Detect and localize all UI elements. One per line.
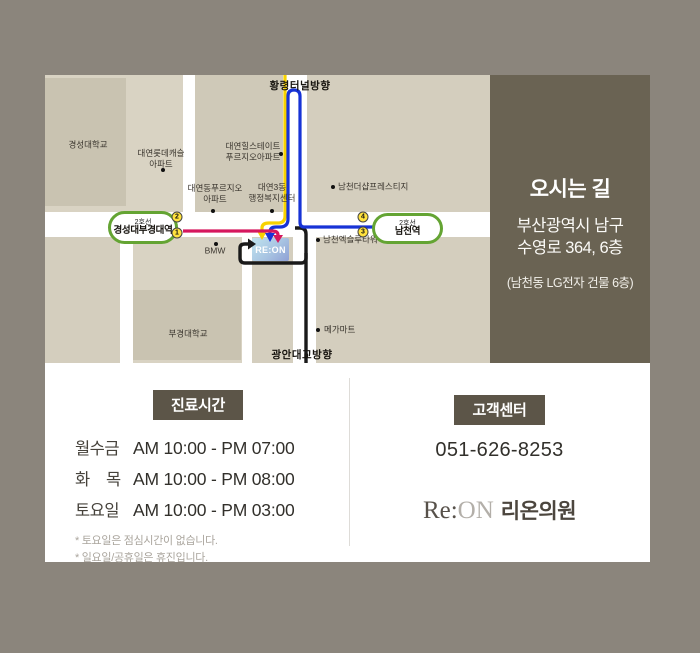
station-name-label: 경성대부경대역 xyxy=(113,226,172,236)
hours-row: 화 목AM 10:00 - PM 08:00 xyxy=(75,466,335,490)
map-label: 황령터널방향 xyxy=(270,80,331,94)
station-exit-number: 3 xyxy=(358,227,369,238)
contact-badge: 고객센터 xyxy=(454,395,544,425)
clinic-address: 부산광역시 남구 수영로 364, 6층 xyxy=(490,216,650,260)
page-background: RE:ON 황령터널방향광안대교방향경성대학교대연롯데캐슬 아파트대연힐스테이트… xyxy=(0,0,700,653)
subway-station-badge: 2호선경성대부경대역 xyxy=(108,211,178,244)
hours-notes: * 토요일은 점심시간이 없습니다.* 일요일/공휴일은 휴진입니다. xyxy=(75,533,335,566)
location-map: RE:ON 황령터널방향광안대교방향경성대학교대연롯데캐슬 아파트대연힐스테이트… xyxy=(45,75,490,363)
map-label: 대연힐스테이트 푸르지오아파트 xyxy=(226,141,281,163)
address-line2: 수영로 364, 6층 xyxy=(490,238,650,260)
map-label: 대연롯데캐슬 아파트 xyxy=(138,148,185,170)
hours-badge: 진료시간 xyxy=(153,390,243,420)
hours-time: AM 10:00 - PM 07:00 xyxy=(133,438,295,459)
address-note: (남천동 LG전자 건물 6층) xyxy=(490,272,650,291)
map-label: 메가마트 xyxy=(324,324,355,335)
map-label: 대연3동 행정복지센터 xyxy=(249,182,296,204)
hours-row: 월수금AM 10:00 - PM 07:00 xyxy=(75,435,335,459)
hours-row: 토요일AM 10:00 - PM 03:00 xyxy=(75,497,335,521)
map-poi-dot xyxy=(214,242,218,246)
map-poi-dot xyxy=(211,209,215,213)
map-label: 남천엑슬루타워 xyxy=(323,234,378,245)
map-poi-dot xyxy=(279,152,283,156)
map-label: 남천더샵프레스티지 xyxy=(338,181,408,192)
contact-section: 고객센터 051-626-8253 Re:ON리온의원 xyxy=(349,395,650,525)
logo-on-text: ON xyxy=(458,497,494,524)
phone-number[interactable]: 051-626-8253 xyxy=(349,439,650,462)
hours-note: * 일요일/공휴일은 휴진입니다. xyxy=(75,550,335,567)
logo-clinic-name: 리온의원 xyxy=(501,500,576,523)
hours-days: 토요일 xyxy=(75,497,133,521)
hours-note: * 토요일은 점심시간이 없습니다. xyxy=(75,533,335,550)
map-label: 부경대학교 xyxy=(168,328,207,339)
hours-section: 진료시간 월수금AM 10:00 - PM 07:00화 목AM 10:00 -… xyxy=(75,390,335,566)
clinic-logo: Re:ON리온의원 xyxy=(349,495,650,525)
map-label: BMW xyxy=(205,245,226,256)
map-poi-dot xyxy=(316,238,320,242)
directions-sidebar: 오시는 길 부산광역시 남구 수영로 364, 6층 (남천동 LG전자 건물 … xyxy=(490,75,650,363)
hours-time: AM 10:00 - PM 03:00 xyxy=(133,500,295,521)
hours-table: 월수금AM 10:00 - PM 07:00화 목AM 10:00 - PM 0… xyxy=(75,435,335,521)
directions-title: 오시는 길 xyxy=(490,173,650,203)
map-label: 대연동푸르지오 아파트 xyxy=(188,183,243,205)
map-label: 광안대교방향 xyxy=(272,349,333,363)
map-poi-dot xyxy=(270,209,274,213)
map-poi-dot xyxy=(331,185,335,189)
station-exit-number: 2 xyxy=(172,212,183,223)
station-exit-number: 4 xyxy=(358,212,369,223)
logo-re-text: Re: xyxy=(423,497,458,524)
map-poi-dot xyxy=(161,168,165,172)
address-line1: 부산광역시 남구 xyxy=(490,216,650,238)
station-exit-number: 1 xyxy=(172,228,183,239)
hours-days: 월수금 xyxy=(75,435,133,459)
info-panel: 진료시간 월수금AM 10:00 - PM 07:00화 목AM 10:00 -… xyxy=(45,363,650,562)
map-label: 경성대학교 xyxy=(68,139,107,150)
subway-station-badge: 2호선남천역 xyxy=(372,213,443,244)
hours-days: 화 목 xyxy=(75,466,133,490)
directions-card: RE:ON 황령터널방향광안대교방향경성대학교대연롯데캐슬 아파트대연힐스테이트… xyxy=(45,75,650,562)
station-name-label: 남천역 xyxy=(395,227,420,237)
map-poi-dot xyxy=(316,328,320,332)
hours-time: AM 10:00 - PM 08:00 xyxy=(133,469,295,490)
